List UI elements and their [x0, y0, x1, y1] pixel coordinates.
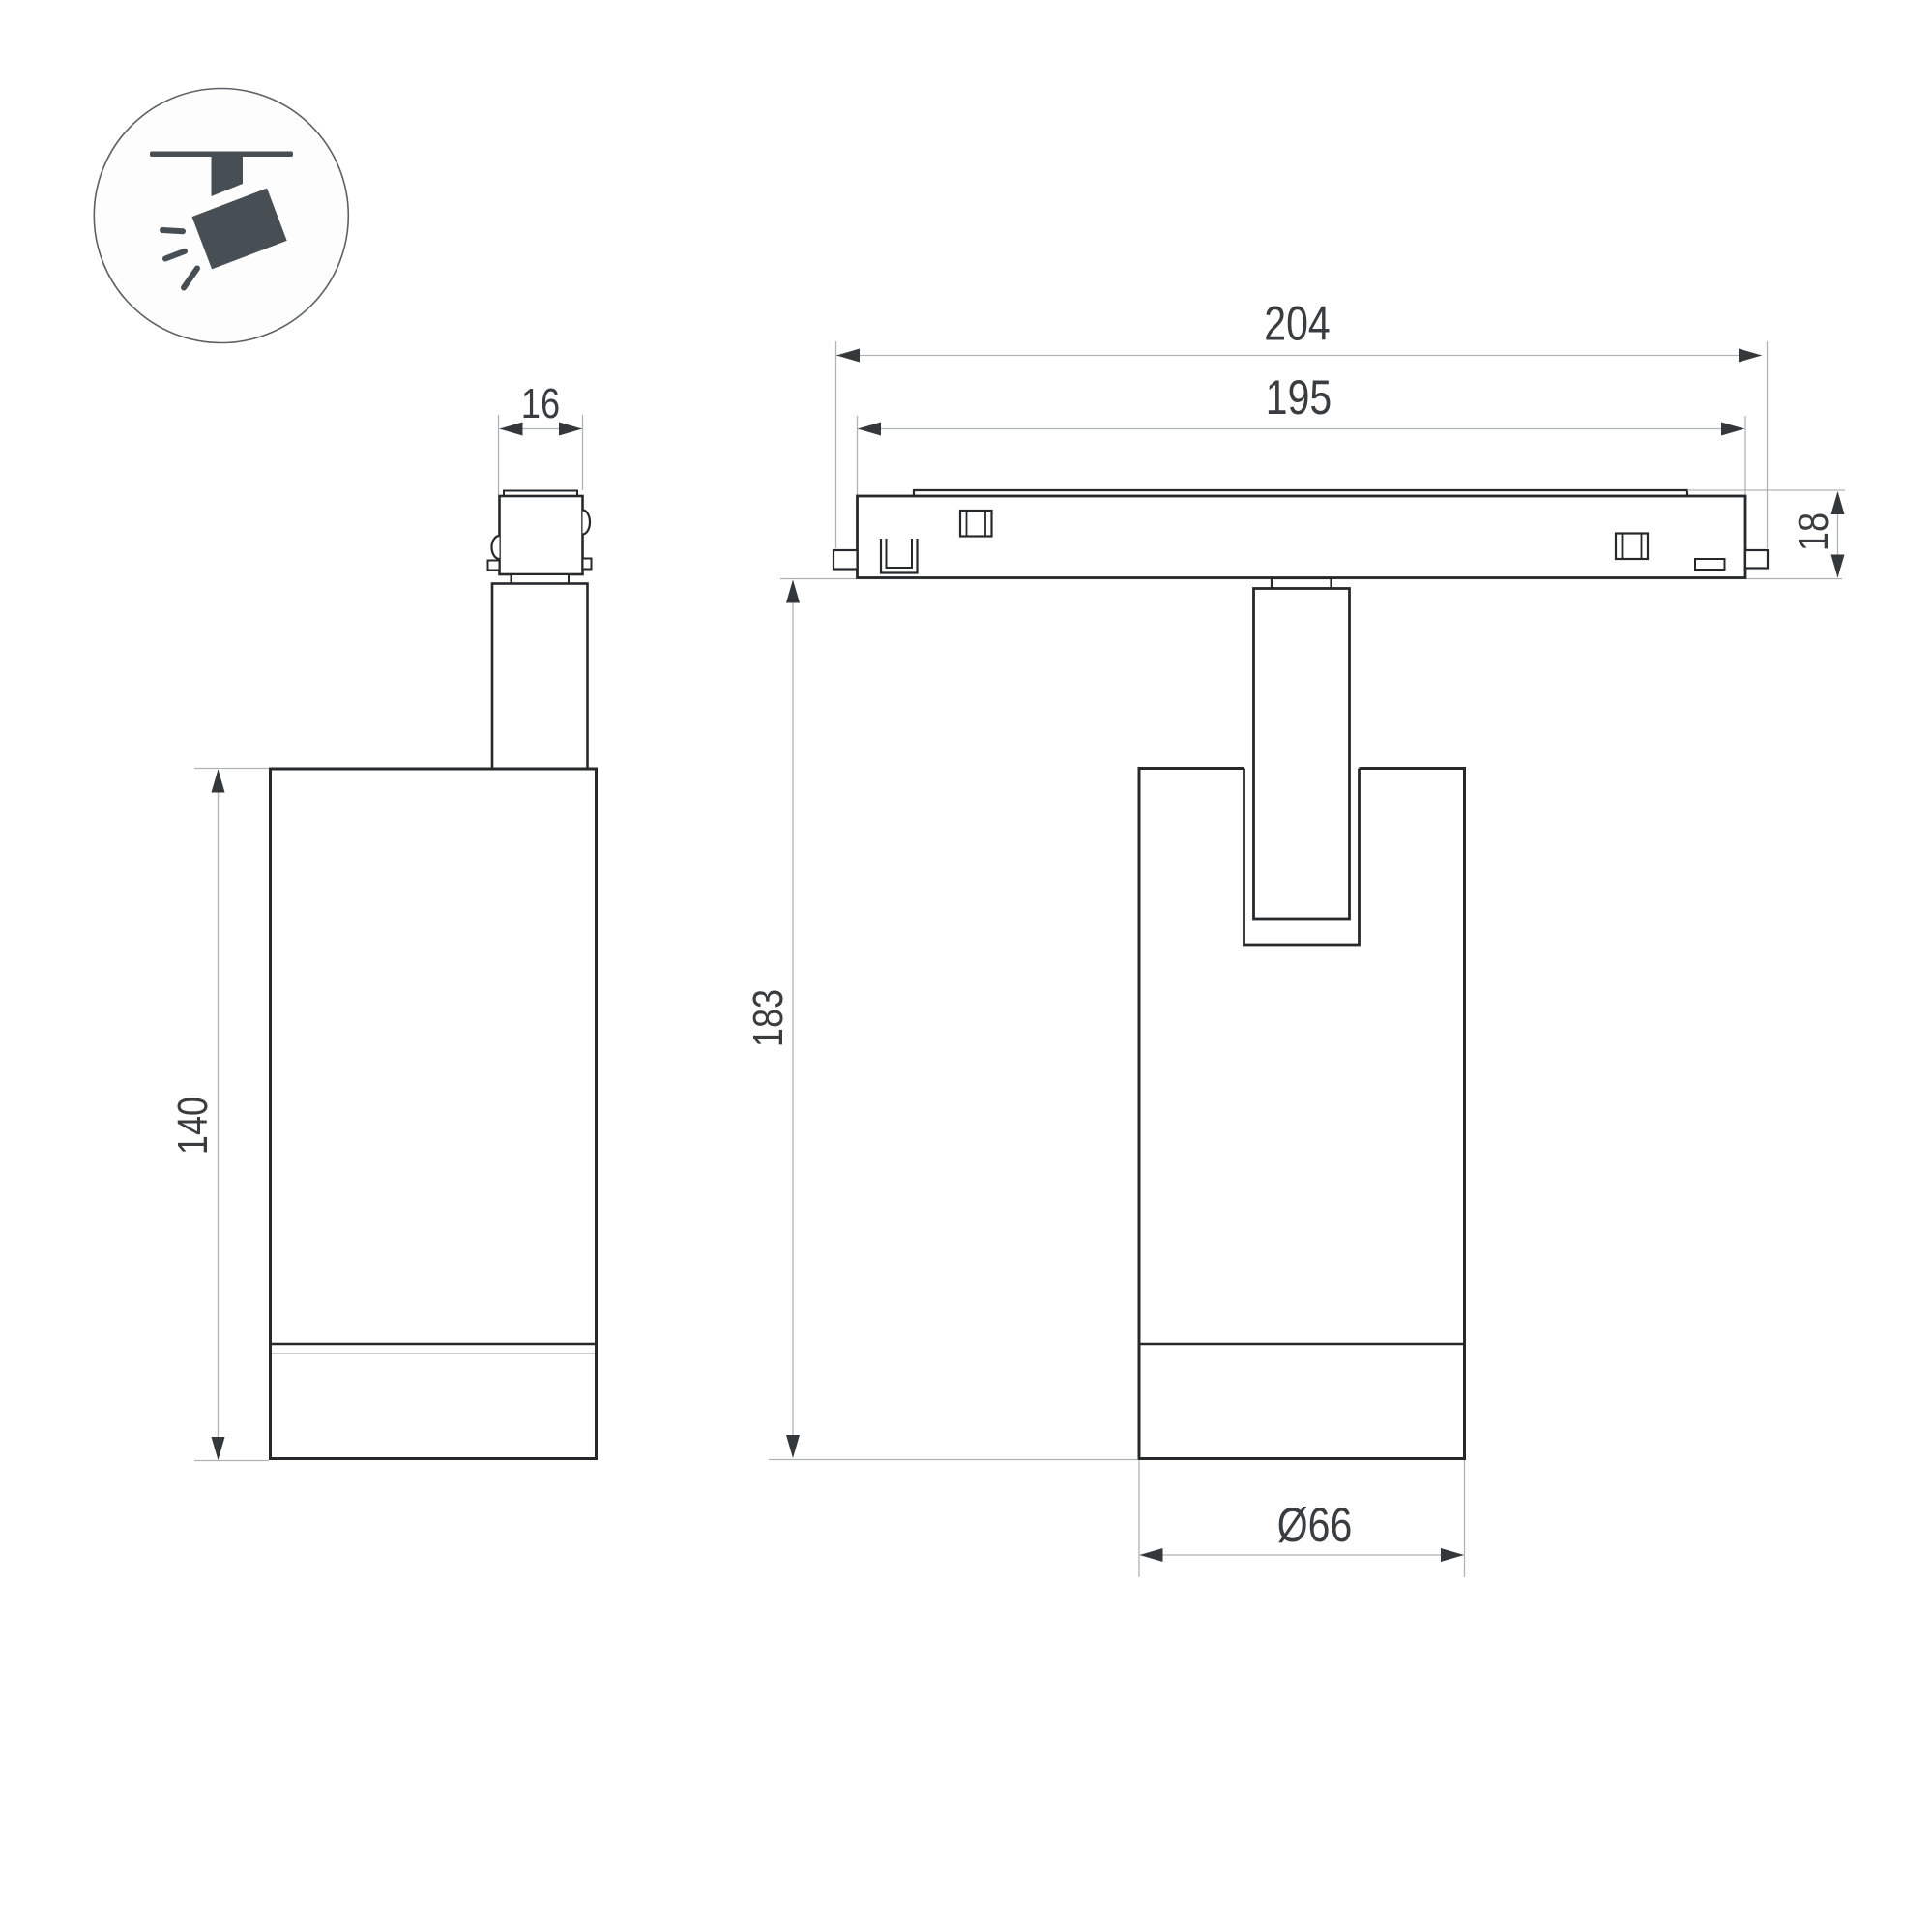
svg-text:16: 16: [521, 380, 560, 427]
svg-text:195: 195: [1266, 370, 1332, 424]
svg-text:Ø66: Ø66: [1277, 1498, 1352, 1552]
svg-text:18: 18: [1790, 512, 1837, 551]
svg-text:140: 140: [169, 1097, 217, 1155]
svg-text:183: 183: [745, 989, 792, 1047]
svg-text:204: 204: [1264, 297, 1330, 351]
